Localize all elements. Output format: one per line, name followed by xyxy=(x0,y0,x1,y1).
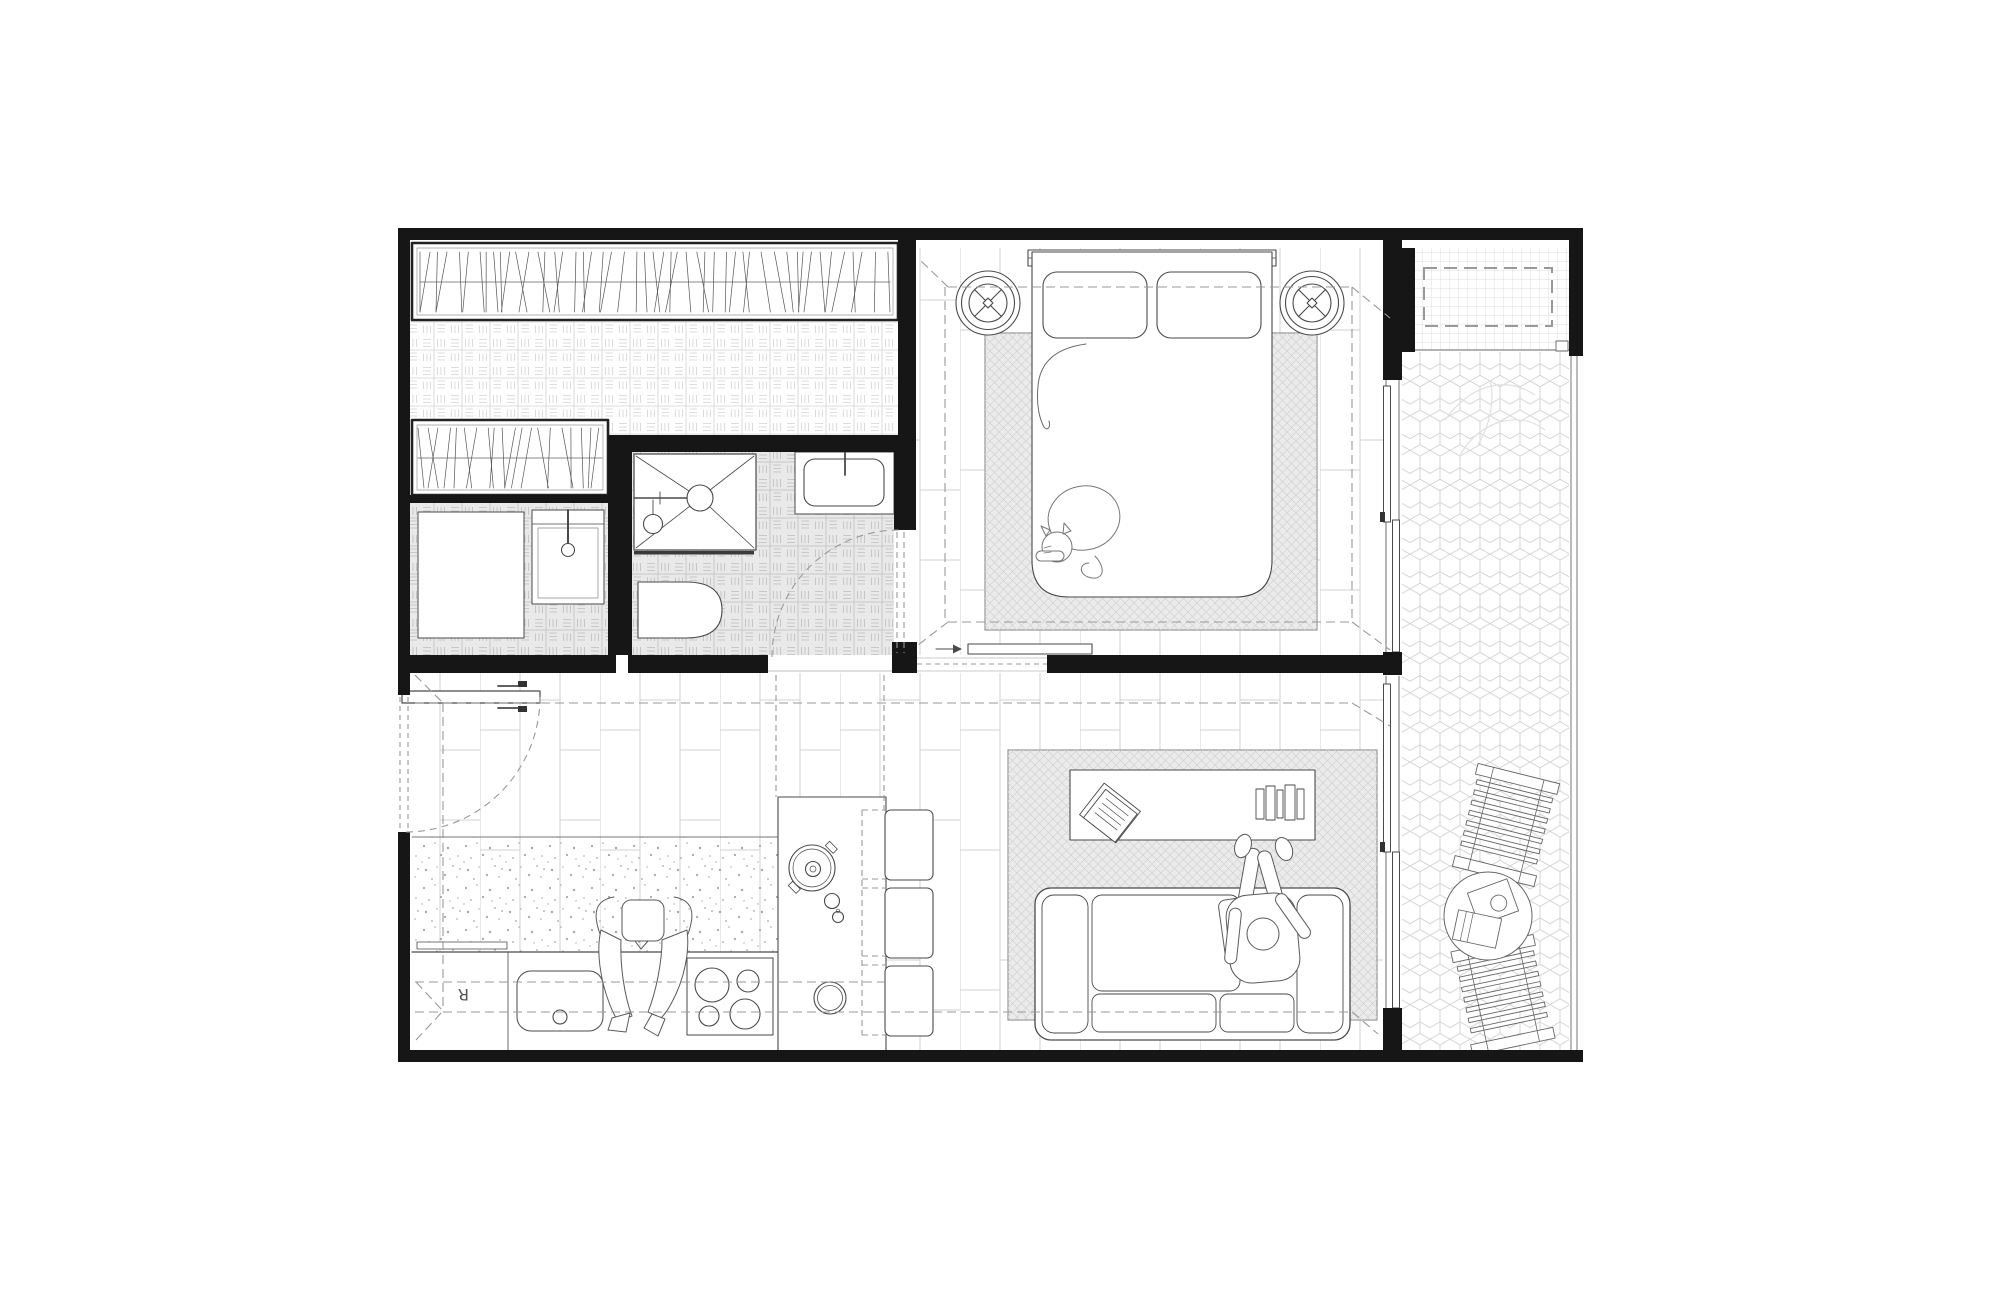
bedside-pendant-light-right xyxy=(1280,271,1344,335)
wall-bathroom-right xyxy=(894,435,911,530)
planter-bed xyxy=(1415,248,1569,350)
wall-planter-left xyxy=(1402,248,1415,352)
prep-sink xyxy=(814,982,846,1014)
cup-small xyxy=(833,912,844,923)
door-leaf xyxy=(402,691,540,703)
wall-exterior-bottom xyxy=(398,1050,1583,1062)
pillow-right xyxy=(1157,272,1261,338)
wall-balcony-mid-stub xyxy=(1383,652,1402,675)
bedside-pendant-light-left xyxy=(956,271,1020,335)
wall-closet-laundry xyxy=(410,495,608,503)
wall-laundry-bottom xyxy=(398,655,616,673)
wall-bathroom-top xyxy=(608,435,911,452)
kitchen-sink xyxy=(517,971,603,1031)
living-room xyxy=(1035,770,1350,1040)
wardrobe-top xyxy=(412,243,898,320)
balcony-table xyxy=(1444,872,1532,960)
bathroom-sink xyxy=(795,445,894,514)
door-panel xyxy=(968,644,1092,654)
floor-plan: R xyxy=(0,0,2000,1294)
wall-bedroom-living-divider xyxy=(1047,655,1402,673)
utility-sink xyxy=(532,510,604,604)
wall-exterior-top xyxy=(398,228,1583,240)
wall-exterior-left-lower xyxy=(398,832,410,1062)
bedroom-glass-panel-2 xyxy=(1393,520,1400,652)
pillow-left xyxy=(1043,272,1147,338)
terrazzo-counter xyxy=(412,837,778,952)
door-handle xyxy=(518,706,527,712)
wall-balcony-right-upper xyxy=(1569,240,1583,356)
washer xyxy=(418,512,524,638)
fridge-label: R xyxy=(458,985,469,1004)
wall-exterior-left-upper xyxy=(398,228,410,695)
sofa xyxy=(1035,888,1350,1040)
floor-plan-page: R xyxy=(0,0,2000,1294)
cooktop xyxy=(687,958,773,1035)
shower xyxy=(634,454,756,555)
toilet xyxy=(638,582,722,638)
wall-bathroom-bottom xyxy=(628,655,768,673)
head xyxy=(1247,918,1279,950)
wardrobe-small xyxy=(412,420,608,495)
wall-bath-laundry xyxy=(608,435,632,655)
bedroom-glass-panel xyxy=(1384,386,1391,522)
dressing-corridor-tile-floor xyxy=(410,320,898,435)
cup xyxy=(825,894,840,909)
bar-stool-2 xyxy=(885,888,933,958)
head xyxy=(622,900,664,941)
bar-stool-1 xyxy=(885,810,933,880)
bar-stool-3 xyxy=(885,966,933,1036)
wall-balcony-bedroom xyxy=(1383,240,1402,380)
books xyxy=(1256,785,1304,820)
door-handle xyxy=(518,681,527,687)
hand-shower xyxy=(644,515,663,534)
wall-balcony-living-stub xyxy=(1383,1008,1402,1050)
shower-screen xyxy=(634,551,754,555)
living-glass-panel xyxy=(1384,684,1391,852)
living-glass-panel-2 xyxy=(1393,852,1400,1008)
